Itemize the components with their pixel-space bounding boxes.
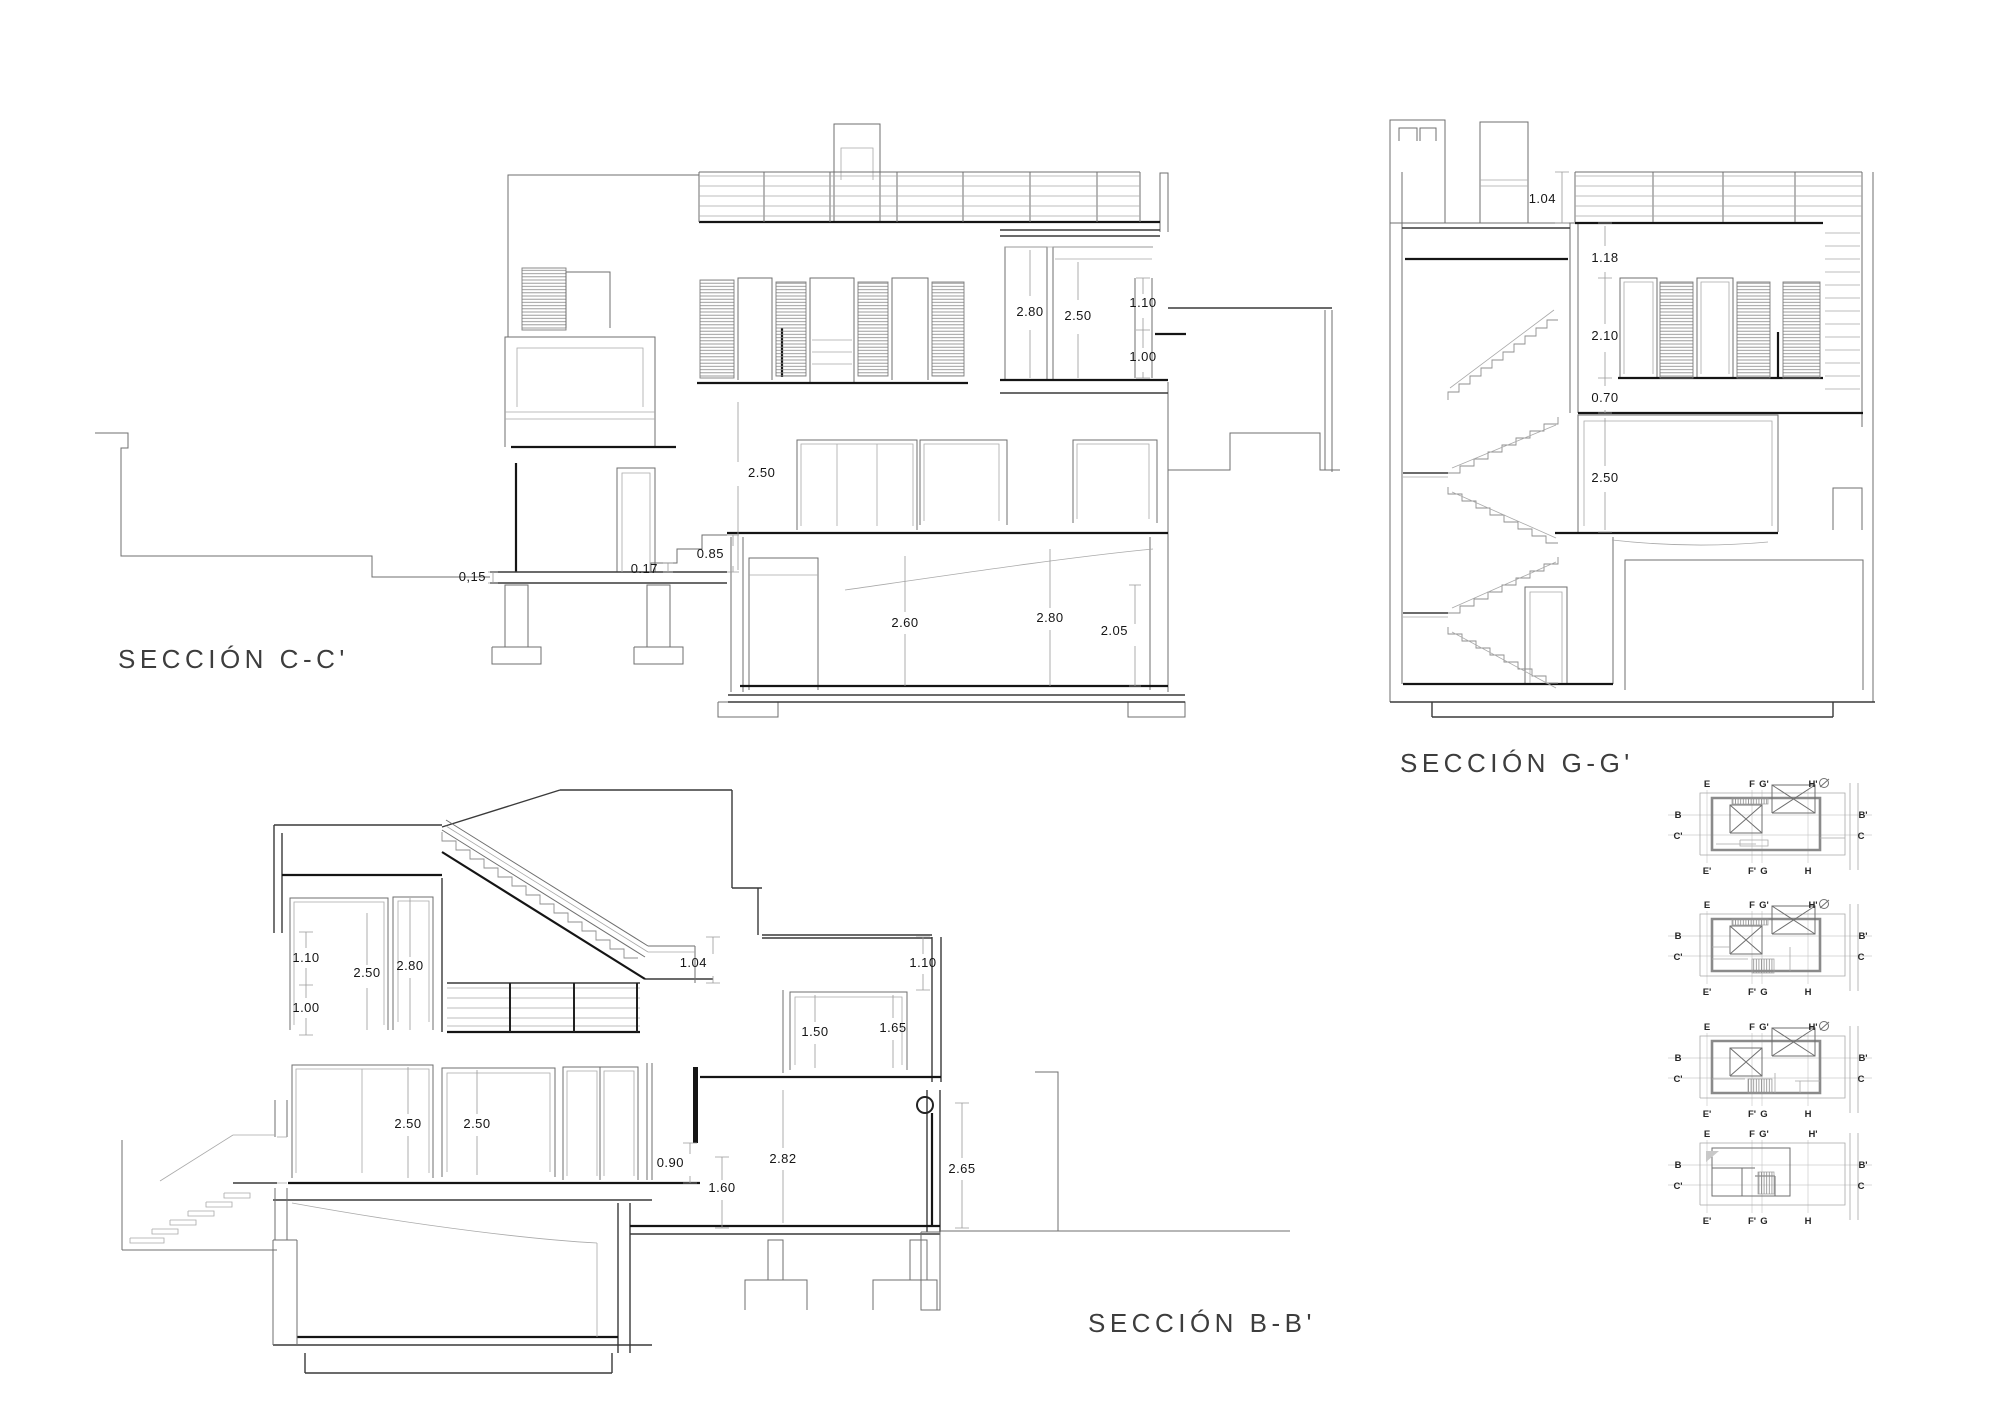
grid-label-h-prime: H' (1808, 1022, 1817, 1033)
dim-label: 2.80 (1016, 304, 1043, 319)
dim-label: 2.50 (748, 465, 775, 480)
louver-panel (858, 282, 888, 376)
stair-rails (1450, 310, 1556, 688)
grid-label-f-prime: F' (1748, 866, 1756, 877)
dim-label: 1.50 (801, 1024, 828, 1039)
key-plan-upper: E F G' H' E' F' G H B C' B' C (1668, 900, 1872, 999)
dim-label: 1.00 (292, 1000, 319, 1015)
cut-slabs (282, 852, 941, 1337)
grid-label-e: E (1704, 900, 1710, 911)
section-bb-entry-steps (130, 1193, 250, 1243)
stair-flight (1448, 557, 1558, 613)
grid-label-h: H (1805, 1109, 1812, 1120)
railing-rails (1575, 176, 1862, 216)
dim-label: 1.00 (1129, 349, 1156, 364)
grid-label-f: F (1749, 900, 1755, 911)
cut-slabs (511, 222, 1186, 686)
dim-label: 1.04 (680, 955, 707, 970)
stair-flight (1448, 320, 1558, 400)
grid-label-h: H (1805, 987, 1812, 998)
dim-label: 0.70 (1591, 390, 1618, 405)
grid-label-c-prime: C' (1673, 831, 1682, 842)
louver-panel (1660, 282, 1693, 378)
section-cc-louvers (522, 268, 964, 378)
dim-label: 2.50 (1064, 308, 1091, 323)
stair-flight (1448, 627, 1558, 683)
grid-label-g-prime: G' (1759, 900, 1769, 911)
section-bb-dimensions: 1.10 2.50 2.80 1.00 1.04 1.10 1.50 1.65 … (292, 898, 975, 1228)
dim-label: 2.50 (394, 1116, 421, 1131)
grid-label-e: E (1704, 779, 1710, 790)
key-plan-roof: E F G' H' E' F' G H B C' B' C (1668, 779, 1872, 878)
railing-rails (699, 176, 1140, 216)
section-cc: 2.80 2.50 1.10 1.00 2.50 0.85 0.17 0,15 … (95, 124, 1340, 717)
grid-label-e-prime: E' (1703, 987, 1712, 998)
grid-label-f-prime: F' (1748, 1109, 1756, 1120)
dim-label: 2.60 (891, 615, 918, 630)
drawing-sheet: 2.80 2.50 1.10 1.00 2.50 0.85 0.17 0,15 … (0, 0, 2000, 1413)
grid-label-f-prime: F' (1748, 987, 1756, 998)
dim-label: 1.65 (879, 1020, 906, 1035)
section-gg-dimensions: 1.04 1.18 2.10 0.70 2.50 (1529, 172, 1619, 532)
dim-label: 1.10 (292, 950, 319, 965)
section-bb-balcony-railing (447, 983, 640, 1032)
dim-label: 2.50 (1591, 470, 1618, 485)
grid-label-e-prime: E' (1703, 1216, 1712, 1227)
grid-label-c: C (1858, 831, 1865, 842)
grid-label-b: B (1675, 810, 1682, 821)
section-cc-title: SECCIÓN C-C' (118, 644, 349, 674)
dim-label: 2.80 (1036, 610, 1063, 625)
grid-label-g-prime: G' (1759, 1022, 1769, 1033)
louver-panel (700, 280, 734, 378)
section-bb-structure (122, 790, 1290, 1373)
grid-label-g: G (1760, 1109, 1767, 1120)
handrail-circle (917, 1097, 933, 1113)
louver-panel (776, 282, 806, 376)
grid-label-g-prime: G' (1759, 779, 1769, 790)
grid-label-h-prime: H' (1808, 900, 1817, 911)
dim-label: 1.10 (909, 955, 936, 970)
dim-label: 2.50 (353, 965, 380, 980)
grid-label-e-prime: E' (1703, 866, 1712, 877)
dim-label: 1.10 (1129, 295, 1156, 310)
section-gg-louvers (1660, 282, 1820, 378)
grid-label-c: C (1858, 1074, 1865, 1085)
railing-posts (1575, 172, 1862, 222)
grid-label-f-prime: F' (1748, 1216, 1756, 1227)
railing-posts (699, 172, 1140, 222)
dim-label: 2.80 (396, 958, 423, 973)
grid-label-f: F (1749, 1022, 1755, 1033)
grid-label-h-prime: H' (1808, 779, 1817, 790)
louver-panel (932, 282, 964, 376)
grid-label-g: G (1760, 987, 1767, 998)
section-bb: 1.10 2.50 2.80 1.00 1.04 1.10 1.50 1.65 … (122, 790, 1316, 1373)
grid-label-h-prime: H' (1808, 1129, 1817, 1140)
section-gg-stairs (1448, 310, 1558, 688)
dim-label: 2.82 (769, 1151, 796, 1166)
grid-label-c-prime: C' (1673, 1181, 1682, 1192)
section-gg-ladder (1825, 233, 1860, 389)
key-plan-main: E F G' H' E' F' G H B C' B' C (1668, 1022, 1872, 1121)
dim-label: 0.17 (631, 561, 658, 576)
grid-label-g-prime: G' (1759, 1129, 1769, 1140)
grid-label-b-prime: B' (1858, 1160, 1867, 1171)
grid-label-e: E (1704, 1129, 1710, 1140)
dim-label: 1.04 (1529, 191, 1556, 206)
grid-label-f: F (1749, 1129, 1755, 1140)
louver-panel (1783, 282, 1820, 378)
dim-label: 1.18 (1591, 250, 1618, 265)
railing-rails (447, 988, 640, 1026)
dim-label: 2.50 (463, 1116, 490, 1131)
grid-label-h: H (1805, 1216, 1812, 1227)
dim-label: 0.90 (657, 1155, 684, 1170)
louver-panel (522, 268, 566, 330)
grid-label-c: C (1858, 1181, 1865, 1192)
grid-label-b: B (1675, 1053, 1682, 1064)
grid-label-b-prime: B' (1858, 810, 1867, 821)
ladder-rungs (1825, 233, 1860, 389)
cut-wall-bar (693, 1067, 698, 1143)
dim-label: 0.85 (697, 546, 724, 561)
drawing-canvas: 2.80 2.50 1.10 1.00 2.50 0.85 0.17 0,15 … (0, 0, 2000, 1413)
grid-label-e-prime: E' (1703, 1109, 1712, 1120)
dim-label: 0,15 (459, 569, 486, 584)
dim-label: 1.60 (708, 1180, 735, 1195)
grid-label-f: F (1749, 779, 1755, 790)
grid-label-g: G (1760, 866, 1767, 877)
section-gg-title: SECCIÓN G-G' (1400, 748, 1634, 778)
stair-flight (1448, 417, 1558, 473)
dim-label: 2.65 (948, 1161, 975, 1176)
section-cc-roof-railing (699, 172, 1140, 222)
section-bb-title: SECCIÓN B-B' (1088, 1308, 1316, 1338)
railing-posts (510, 983, 637, 1032)
stair-flight (1448, 487, 1558, 543)
grid-labels: E F G' H' E' F' G H B C' B' C (1673, 1022, 1867, 1120)
stair-steps (442, 832, 638, 958)
grid-label-h: H (1805, 866, 1812, 877)
grid-labels: E F G' H' E' F' G H B C' B' C (1673, 779, 1867, 877)
dim-label: 2.10 (1591, 328, 1618, 343)
grid-label-b: B (1675, 1160, 1682, 1171)
section-gg-roof-railing (1575, 172, 1862, 222)
grid-label-g: G (1760, 1216, 1767, 1227)
grid-labels: E F G' H' E' F' G H B C' B' C (1673, 900, 1867, 998)
section-gg: 1.04 1.18 2.10 0.70 2.50 SECCIÓN G-G' (1390, 120, 1875, 778)
grid-label-b-prime: B' (1858, 931, 1867, 942)
grid-label-b-prime: B' (1858, 1053, 1867, 1064)
section-cc-structure (95, 124, 1340, 717)
louver-panel (1737, 282, 1770, 378)
dim-label: 2.05 (1101, 623, 1128, 638)
key-plan-basement: E F G' H' E' F' G H B C' B' C (1668, 1129, 1872, 1227)
grid-label-c: C (1858, 952, 1865, 963)
grid-label-c-prime: C' (1673, 952, 1682, 963)
key-plans: E F G' H' E' F' G H B C' B' C E F G' H' … (1668, 779, 1872, 1228)
section-gg-structure (1390, 120, 1875, 717)
grid-label-c-prime: C' (1673, 1074, 1682, 1085)
grid-label-e: E (1704, 1022, 1710, 1033)
grid-label-b: B (1675, 931, 1682, 942)
